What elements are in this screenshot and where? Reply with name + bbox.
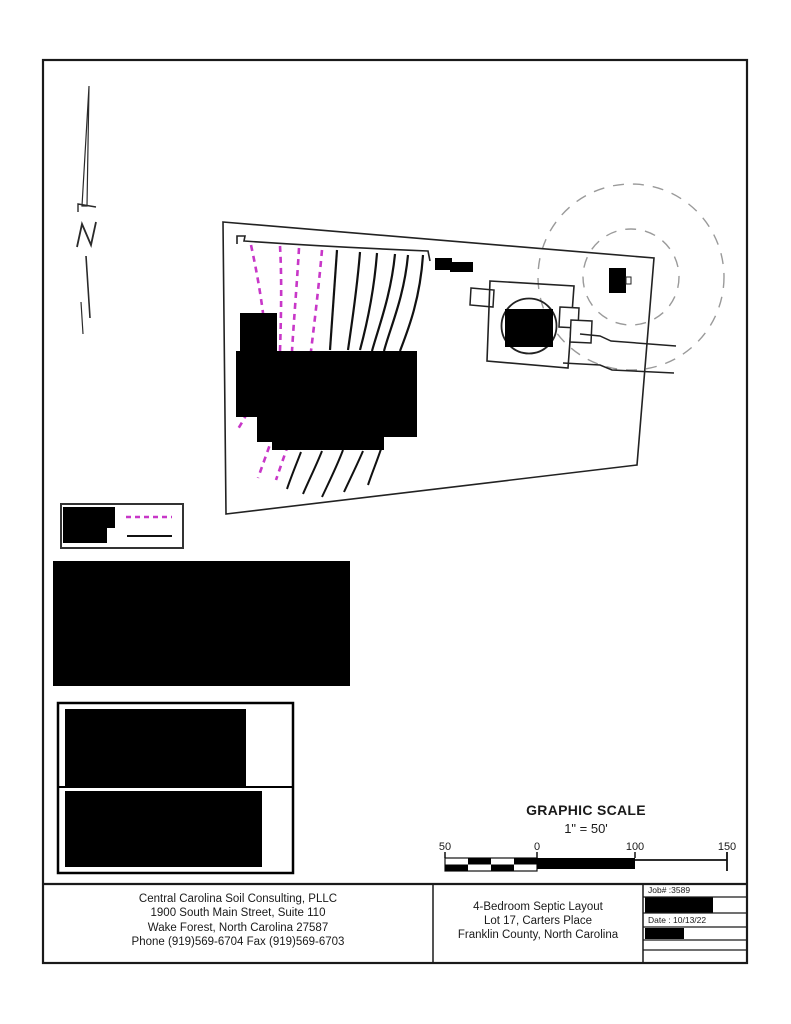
job-number-label: Job# :3589 [648,885,690,895]
trench-line-group-upper [330,250,423,351]
magenta-dashed-line [311,250,322,351]
legend [61,504,183,548]
magenta-dashed-line [258,436,273,478]
project-county: Franklin County, North Carolina [433,929,643,943]
trench-line [344,451,363,492]
scale-label-150: 150 [718,841,736,853]
graphic-scale-title: GRAPHIC SCALE [431,802,741,818]
trench-line [360,253,377,350]
north-arrow-crossbar [78,204,96,212]
firm-city: Wake Forest, North Carolina 27587 [43,921,433,935]
project-title-block: 4-Bedroom Septic Layout Lot 17, Carters … [433,901,643,942]
scale-label-0: 0 [534,841,540,853]
trench-line [348,252,360,350]
magenta-dashed-line [276,445,288,480]
magenta-dashed-line [292,248,299,351]
plan-sheet: GRAPHIC SCALE 1" = 50' 50 0 100 150 Cent… [0,0,791,1024]
trench-line [400,255,423,351]
scale-checker-cell [491,865,514,872]
firm-name: Central Carolina Soil Consulting, PLLC [43,892,433,906]
well-marker [609,268,626,293]
firm-address-block: Central Carolina Soil Consulting, PLLC 1… [43,892,433,949]
redaction-approval-row-2 [65,791,262,867]
inner-utility-line [237,236,430,261]
project-title: 4-Bedroom Septic Layout [433,901,643,915]
north-arrow-stem [86,256,90,318]
north-letter-n [77,222,96,247]
trench-line [368,449,381,485]
site-plan-drawing [0,0,791,1024]
driveway-edge-bottom [563,363,674,373]
redaction-notes-block [53,561,350,686]
scale-checker-cell [468,858,491,865]
house-footprint [470,281,592,368]
graphic-scale-bar [445,852,727,871]
project-lot: Lot 17, Carters Place [433,915,643,929]
redaction-approval-row-1 [65,709,246,786]
firm-phone: Phone (919)569-6704 Fax (919)569-6703 [43,935,433,949]
north-arrow-stem-2 [81,302,83,334]
scale-checker-cell [445,865,468,872]
scale-solid-section [537,858,635,869]
firm-street: 1900 South Main Street, Suite 110 [43,906,433,920]
magenta-dashed-line [251,245,263,313]
trench-line [303,451,322,494]
graphic-scale-ratio: 1" = 50' [431,821,741,836]
well-symbol [626,277,631,284]
date-label: Date : 10/13/22 [648,915,706,925]
redaction-job-value [645,898,713,913]
scale-label-50: 50 [439,841,451,853]
trench-line-group-lower [287,449,381,497]
redaction-date-value [645,928,684,939]
scale-checker-cell [514,858,537,865]
redaction-legend-labels [63,507,115,543]
magenta-dashed-line [280,246,281,351]
redaction-structure [435,258,473,272]
trench-line [322,450,343,497]
scale-label-100: 100 [626,841,644,853]
north-arrow [77,86,96,334]
house-step-2 [570,320,592,343]
trench-line [330,250,337,350]
north-arrow-needle [82,86,89,206]
driveway-edge-top [580,334,676,346]
trench-line [287,452,301,489]
redaction-house-label [505,309,553,347]
approval-box [58,703,293,873]
